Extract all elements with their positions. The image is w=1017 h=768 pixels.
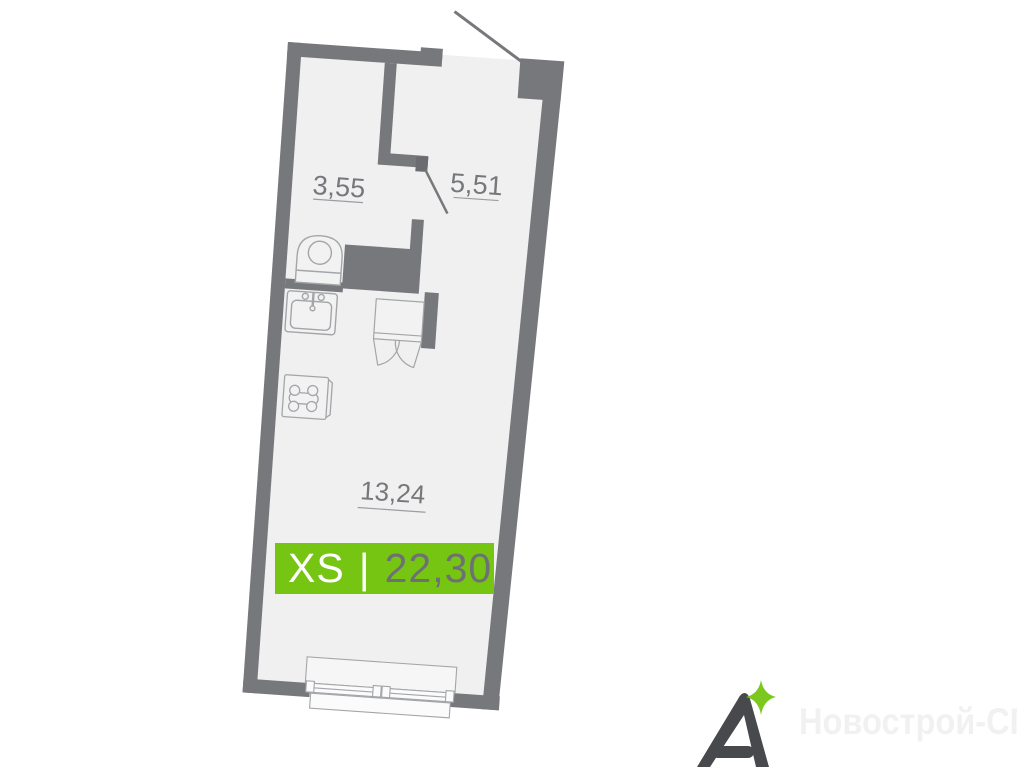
room-label-hallway: 5,51 xyxy=(449,168,504,202)
faucet-handle-right xyxy=(318,294,324,300)
faucet-handle-left xyxy=(302,293,308,299)
burner-top-right xyxy=(307,385,318,396)
wall-corner-entrance xyxy=(518,58,565,101)
room-label-living: 13,24 xyxy=(359,475,426,509)
faucet-stem xyxy=(313,292,314,306)
brand-logo xyxy=(696,679,778,767)
entrance-door-leaf xyxy=(451,12,524,62)
badge-separator: | xyxy=(359,545,370,593)
entrance-jamb xyxy=(420,47,443,59)
floorplan: 3,55 5,51 13,24 xyxy=(221,0,591,731)
faucet-spout-dot xyxy=(310,306,315,311)
burner-top-left xyxy=(289,385,300,396)
badge-size-class: XS xyxy=(288,543,345,594)
window-mullion-right xyxy=(445,691,454,703)
wall-bathroom-connector xyxy=(410,219,424,252)
room-label-bathroom: 3,55 xyxy=(312,170,367,204)
area-badge: XS | 22,30 xyxy=(275,543,494,594)
floorplan-canvas: 3,55 5,51 13,24 XS | 22,30 Новострой-СПб xyxy=(0,0,1017,768)
window-mullion-mid-left xyxy=(373,686,382,698)
watermark-text: Новострой-СПб xyxy=(799,701,1017,743)
window-mullion-mid-right xyxy=(382,686,391,698)
burner-bottom-right xyxy=(306,401,317,412)
badge-total-area: 22,30 xyxy=(385,543,493,594)
duct-block xyxy=(342,244,422,293)
logo-letter-a-crossbar xyxy=(712,746,754,758)
window-mullion-left xyxy=(306,681,315,693)
sink-basin xyxy=(290,300,332,331)
burner-bottom-left xyxy=(288,401,299,412)
